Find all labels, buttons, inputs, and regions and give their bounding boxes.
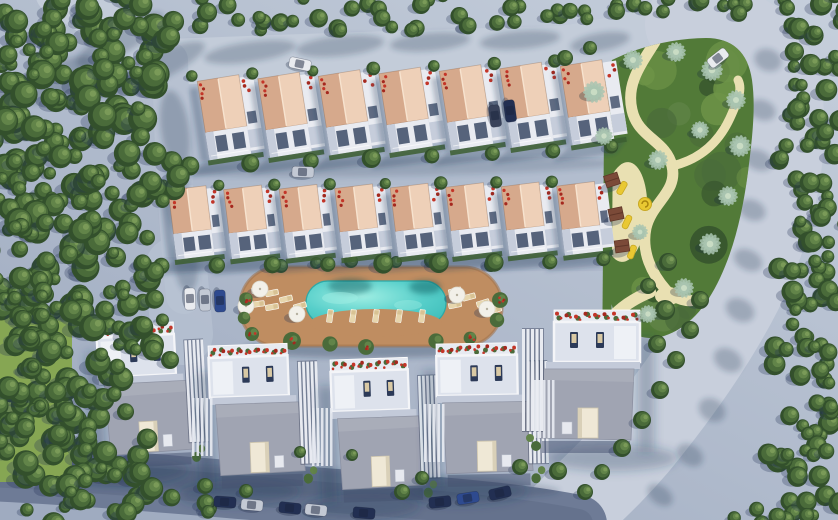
car <box>289 166 314 180</box>
car <box>349 506 375 520</box>
aerial-render-canvas <box>0 0 838 520</box>
playground-spiral-slide <box>639 198 652 211</box>
aerial-site-plan-render <box>0 0 838 520</box>
